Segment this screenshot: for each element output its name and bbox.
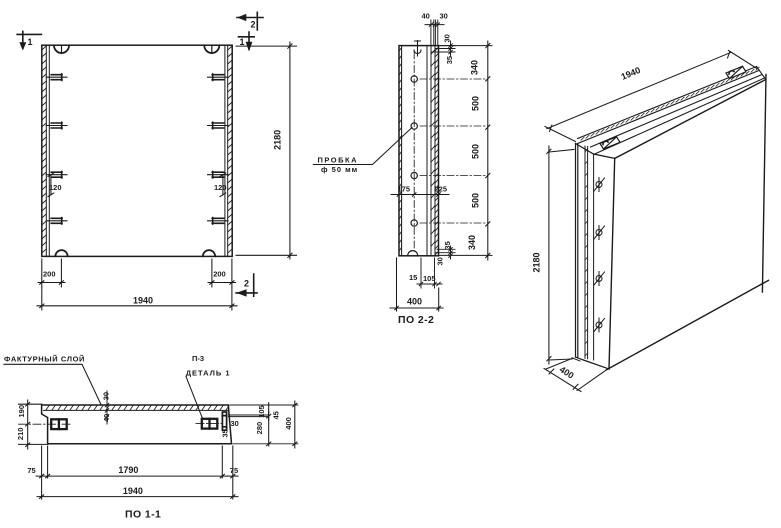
svg-text:1: 1 [28,37,33,47]
svg-text:500: 500 [471,193,481,208]
svg-text:280: 280 [255,422,264,435]
svg-text:ФАКТУРНЫЙ СЛОЙ: ФАКТУРНЫЙ СЛОЙ [4,355,85,364]
svg-text:200: 200 [213,270,226,279]
svg-text:40: 40 [102,414,111,422]
svg-text:ДЕТАЛЬ 1: ДЕТАЛЬ 1 [186,369,231,378]
svg-text:1940: 1940 [123,486,143,496]
svg-text:2: 2 [251,20,256,30]
svg-text:120: 120 [214,183,227,192]
svg-text:500: 500 [471,144,481,159]
svg-text:ПРОБКА: ПРОБКА [318,156,359,165]
svg-text:ПО 1-1: ПО 1-1 [125,509,161,521]
svg-text:30: 30 [440,12,448,21]
svg-text:190: 190 [17,405,26,418]
svg-text:120: 120 [49,183,62,192]
svg-text:340: 340 [470,60,480,75]
svg-text:400: 400 [284,417,293,430]
svg-text:1790: 1790 [118,465,138,475]
svg-text:1940: 1940 [133,296,153,306]
svg-text:225: 225 [435,185,448,194]
svg-text:1: 1 [240,37,245,47]
svg-text:2180: 2180 [532,252,542,272]
svg-text:40: 40 [422,12,430,21]
svg-text:200: 200 [43,270,56,279]
svg-text:75: 75 [27,466,35,475]
svg-text:30: 30 [102,392,111,400]
svg-text:35: 35 [443,241,452,249]
svg-text:175: 175 [398,185,411,194]
svg-text:400: 400 [407,297,422,307]
svg-text:2180: 2180 [273,130,283,150]
svg-text:105: 105 [257,405,266,418]
svg-text:2: 2 [244,279,249,289]
svg-text:П-3: П-3 [192,354,204,363]
svg-text:75: 75 [230,466,238,475]
svg-text:ф 50 мм: ф 50 мм [321,165,358,174]
svg-text:500: 500 [471,96,481,111]
svg-text:15: 15 [409,273,417,282]
svg-text:45: 45 [272,411,281,419]
svg-text:ПО 2-2: ПО 2-2 [398,314,434,326]
svg-text:30: 30 [443,34,452,42]
svg-text:35: 35 [445,56,454,64]
svg-text:30: 30 [231,419,239,428]
svg-text:340: 340 [467,235,477,250]
svg-text:210: 210 [16,428,25,441]
svg-text:105: 105 [423,274,436,283]
svg-text:35: 35 [221,429,230,437]
svg-text:30: 30 [435,257,444,265]
